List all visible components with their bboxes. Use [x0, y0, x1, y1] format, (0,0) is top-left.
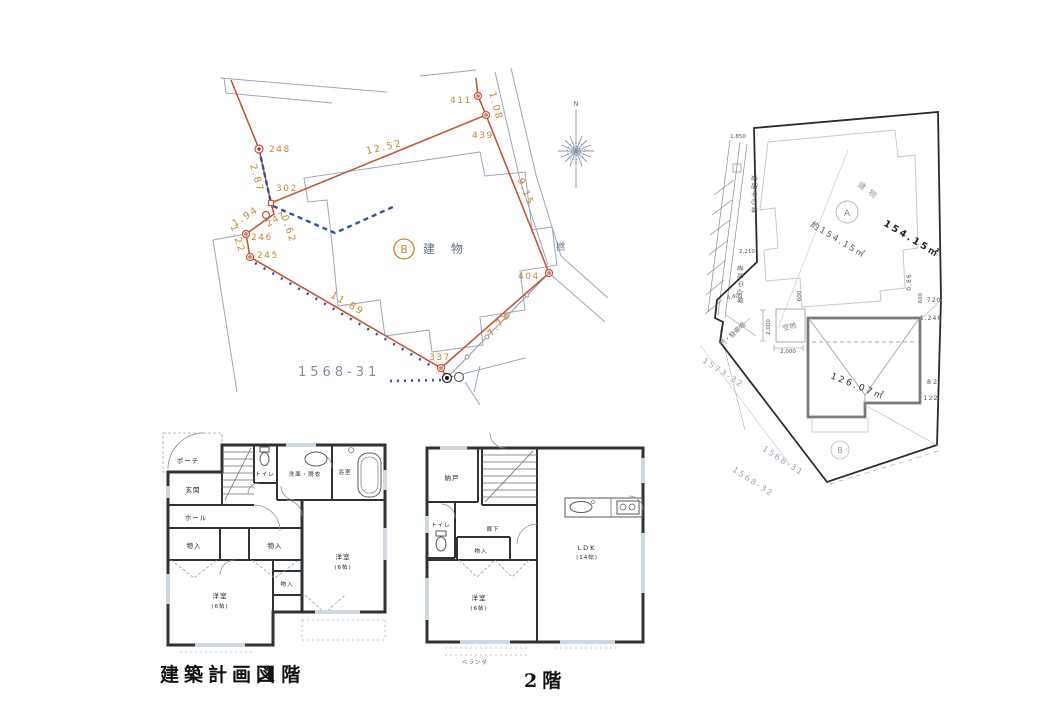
dim-1850: 1,850	[730, 134, 746, 140]
label-corridor: 廊下	[486, 525, 499, 533]
open-space-group: 空地 門・駐車場	[717, 309, 805, 348]
area-a-approx: 約154.15㎡	[808, 219, 867, 261]
label-storage-2: 物入	[268, 541, 283, 550]
edge-clipped-text: 撚	[556, 241, 565, 253]
building-b: 126.07㎡	[808, 300, 941, 447]
num-720: 720	[927, 297, 941, 304]
label-storage-1: 物入	[187, 541, 202, 550]
veranda-dashes	[445, 648, 620, 655]
area-a-bold: 154.15㎡	[881, 217, 942, 260]
point-248-center	[257, 147, 260, 150]
floor2-caption: 2階	[524, 666, 566, 693]
survey-map: 248 302 247 246 245 411 439 404 337 12.5…	[180, 60, 610, 405]
dim-9-15: 9.15	[515, 176, 536, 207]
point-label-439: 439	[472, 131, 494, 141]
toilet-tank	[260, 447, 269, 452]
num-600-right: 600	[918, 292, 924, 303]
site-boundary	[715, 112, 941, 482]
label-room-east: 洋室	[336, 552, 351, 561]
label-closet: 納戸	[445, 473, 460, 482]
num-600-left: 600	[797, 290, 803, 301]
label-room-east-size: (6帖)	[334, 563, 351, 571]
site-parcel-labels: 1573-32 1568-31 1568-32 B	[700, 345, 849, 499]
label-room-west: 洋室	[213, 591, 228, 600]
dim-12-52: 12.52	[365, 138, 404, 157]
building-mark-letter: B	[400, 243, 408, 256]
point-label-246: 246	[251, 233, 273, 243]
point-label-337: 337	[429, 353, 451, 363]
label-room-west-size: (6帖)	[470, 604, 487, 612]
building-a-labels: A 建物 154.15㎡ 約154.15㎡	[808, 179, 942, 260]
label-wash: 洗面・脱衣	[289, 470, 322, 478]
building-a-label: 建物	[856, 179, 883, 202]
point-label-404: 404	[518, 272, 540, 282]
kitchen-sink	[570, 502, 592, 513]
site-plan: A 建物 154.15㎡ 約154.15㎡ 126.07㎡ 空地 門・駐車場 1…	[690, 100, 1040, 510]
label-storage: 物入	[474, 547, 487, 555]
point-label-248: 248	[269, 145, 291, 155]
compass-rose: N	[558, 100, 594, 188]
point-label-245: 245	[257, 251, 279, 261]
label-ldk-size: (14帖)	[576, 553, 598, 561]
point-label-302: 302	[276, 184, 298, 194]
dim-1-22: 1.22	[228, 224, 247, 255]
point-label-411: 411	[450, 96, 472, 106]
bath-drain	[349, 448, 354, 453]
parcel-number: 1568-31	[298, 365, 380, 380]
num-086: 0.86	[906, 273, 913, 290]
floor-plan-2f: 納戸 トイレ 廊下 物入 洋室 (6帖) LDK (14帖) ベランダ	[415, 428, 680, 680]
label-room-west: 洋室	[472, 593, 487, 602]
dim-0-62: 0.62	[279, 214, 298, 245]
survey-traverse-lines	[231, 78, 549, 378]
num-122: 122	[923, 394, 938, 402]
site-boundary-extension	[830, 450, 942, 484]
parcel-1568-31: 1568-31	[761, 444, 806, 477]
parcel-1573-32: 1573-32	[701, 356, 746, 389]
road-center-label-2: 道路中心線	[736, 265, 744, 305]
mark-b-letter: B	[837, 446, 843, 455]
label-veranda: ベランダ	[462, 658, 488, 666]
plan-title: 建築計画図	[160, 660, 280, 687]
kitchen-counter	[565, 498, 642, 517]
label-hall: ホール	[185, 514, 208, 522]
num-82: 82	[927, 378, 939, 386]
open-space-label: 空地	[781, 320, 797, 332]
dim-2210: 2,210	[739, 249, 755, 255]
road-center-label-1: 道路中心線	[750, 175, 758, 215]
area-b-label: 126.07㎡	[829, 371, 887, 403]
building-label: 建 物	[423, 242, 469, 256]
wash-basin	[305, 452, 327, 466]
north-label: N	[573, 100, 578, 108]
label-ldk: LDK	[578, 544, 597, 552]
mark-a-letter: A	[844, 209, 851, 219]
building-mark-group: B 建 物	[394, 239, 469, 259]
dim-2000-h: 2,000	[780, 349, 796, 355]
label-porch: ポーチ	[177, 457, 200, 465]
label-entry: 玄関	[186, 485, 201, 494]
toilet-bowl	[260, 453, 269, 466]
label-toilet: トイレ	[255, 472, 275, 478]
label-toilet: トイレ	[431, 523, 451, 529]
toilet-fixture	[436, 531, 446, 551]
label-room-west-size: (6帖)	[211, 602, 228, 610]
floor1-caption: 1階	[263, 660, 305, 687]
scanned-drawing-sheet: 248 302 247 246 245 411 439 404 337 12.5…	[0, 0, 1040, 720]
num-1246: 1,246	[920, 315, 942, 322]
dim-2000-v: 2,000	[766, 319, 772, 335]
label-bath: 浴室	[338, 468, 351, 476]
building-a-footprint	[760, 130, 918, 307]
parcel-1568-32: 1568-32	[731, 465, 776, 498]
floor-plan-1f: ポーチ 玄関 トイレ 洗面・脱衣 浴室 ホール 物入 物入 物入 洋室 (6帖)…	[155, 428, 420, 668]
label-storage-3: 物入	[280, 580, 293, 588]
